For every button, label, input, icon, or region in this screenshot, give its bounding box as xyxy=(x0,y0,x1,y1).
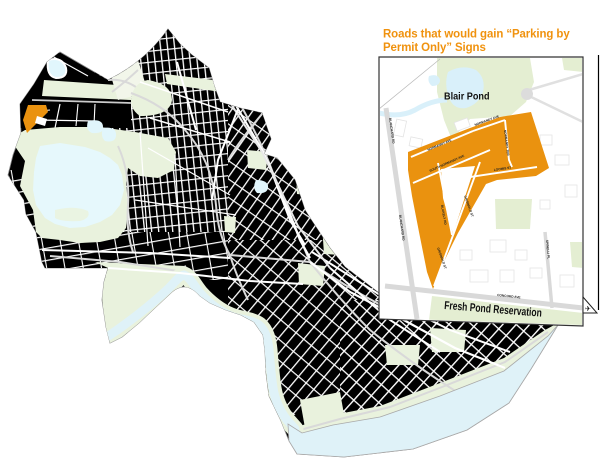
svg-text:Blair Pond: Blair Pond xyxy=(444,91,490,102)
svg-text:✈: ✈ xyxy=(585,306,591,313)
svg-text:Permit Only” Signs: Permit Only” Signs xyxy=(383,40,486,54)
svg-text:Roads that would gain “Parking: Roads that would gain “Parking by xyxy=(383,26,570,40)
